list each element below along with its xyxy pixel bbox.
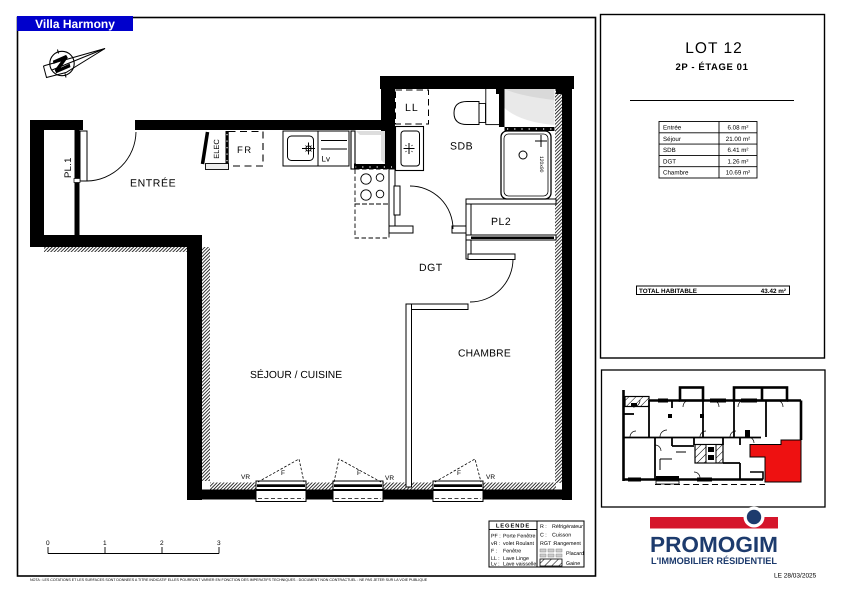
svg-text:Lv: Lv xyxy=(322,155,330,164)
svg-text:SDB: SDB xyxy=(450,141,473,153)
svg-text:volet Roulant: volet Roulant xyxy=(503,541,534,547)
svg-text:1: 1 xyxy=(103,540,107,547)
svg-text:Chambre: Chambre xyxy=(663,170,689,177)
svg-text:43.42 m²: 43.42 m² xyxy=(761,288,786,295)
svg-text:F: F xyxy=(457,470,461,477)
svg-text:1.26 m²: 1.26 m² xyxy=(728,158,749,165)
svg-text:Réfrigérateur: Réfrigérateur xyxy=(552,524,583,530)
svg-text:Séjour: Séjour xyxy=(663,136,681,143)
svg-text:Rangement: Rangement xyxy=(554,541,582,547)
svg-text:F: F xyxy=(281,470,285,477)
svg-text:L'IMMOBILIER RÉSIDENTIEL: L'IMMOBILIER RÉSIDENTIEL xyxy=(651,555,777,567)
svg-text:CHAMBRE: CHAMBRE xyxy=(458,349,511,360)
svg-text:Porte Fenêtre: Porte Fenêtre xyxy=(503,534,535,540)
svg-text:FR: FR xyxy=(237,145,253,156)
svg-text:Entrée: Entrée xyxy=(663,125,682,132)
svg-text:Fenêtre: Fenêtre xyxy=(503,549,521,555)
svg-text:6.08 m²: 6.08 m² xyxy=(728,125,749,132)
svg-text:2P - ÉTAGE 01: 2P - ÉTAGE 01 xyxy=(676,61,749,73)
svg-text:PROMOGIM: PROMOGIM xyxy=(650,532,778,557)
svg-text:Villa Harmony: Villa Harmony xyxy=(35,17,115,31)
svg-text:Lave vaisselle: Lave vaisselle xyxy=(503,562,536,568)
svg-text:2: 2 xyxy=(160,540,164,547)
svg-text:Cuisson: Cuisson xyxy=(552,533,571,539)
svg-text:SDB: SDB xyxy=(663,147,676,154)
svg-text:Lv :: Lv : xyxy=(491,562,500,568)
svg-text:PL.1: PL.1 xyxy=(63,157,74,178)
svg-text:ELEC: ELEC xyxy=(212,139,221,159)
svg-text:VR: VR xyxy=(241,474,250,481)
svg-text:Gaine: Gaine xyxy=(566,561,580,567)
svg-text:Placard: Placard xyxy=(566,551,584,557)
svg-text:vR :: vR : xyxy=(491,541,500,547)
svg-text:PL2: PL2 xyxy=(491,216,511,228)
svg-text:ENTRÉE: ENTRÉE xyxy=(130,177,176,190)
svg-text:10.69 m²: 10.69 m² xyxy=(726,170,750,177)
svg-text:120x90: 120x90 xyxy=(538,156,544,173)
svg-text:F :: F : xyxy=(491,549,497,555)
svg-text:PF :: PF : xyxy=(491,534,501,540)
svg-text:LE 28/03/2025: LE 28/03/2025 xyxy=(774,573,817,580)
svg-text:R :: R : xyxy=(540,524,547,530)
svg-text:VR: VR xyxy=(486,474,495,481)
svg-text:RGT :: RGT : xyxy=(540,541,554,547)
svg-text:VR: VR xyxy=(385,475,394,482)
svg-text:LOT 12: LOT 12 xyxy=(685,40,742,57)
svg-text:NOTA : LES COTATIONS ET LES SU: NOTA : LES COTATIONS ET LES SURFACES SON… xyxy=(30,578,428,582)
svg-text:6.41 m²: 6.41 m² xyxy=(728,147,749,154)
svg-text:0: 0 xyxy=(46,540,50,547)
svg-text:LEGENDE: LEGENDE xyxy=(496,523,530,530)
svg-text:F: F xyxy=(357,470,361,477)
svg-text:DGT: DGT xyxy=(419,262,443,274)
svg-text:3: 3 xyxy=(217,540,221,547)
svg-text:21.00 m²: 21.00 m² xyxy=(726,136,750,143)
svg-text:SÉJOUR / CUISINE: SÉJOUR / CUISINE xyxy=(250,369,342,381)
svg-text:TOTAL HABITABLE: TOTAL HABITABLE xyxy=(639,288,697,295)
svg-text:LL: LL xyxy=(405,102,419,114)
svg-text:DGT: DGT xyxy=(663,158,676,165)
svg-text:C :: C : xyxy=(540,533,547,539)
